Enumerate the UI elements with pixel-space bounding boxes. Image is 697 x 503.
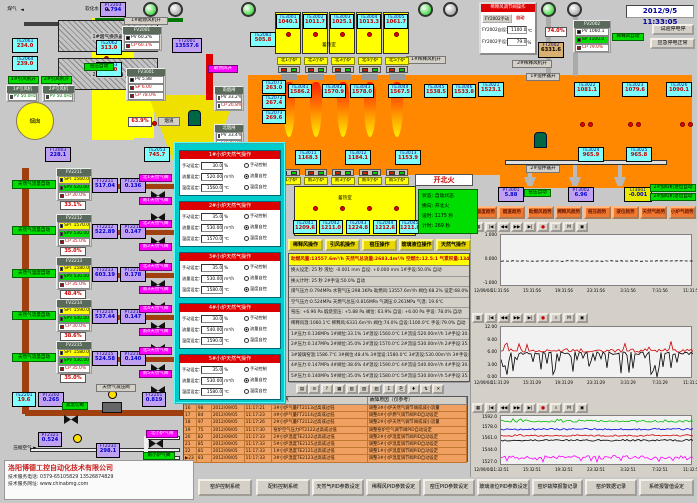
y-tick-label: 1578.0 xyxy=(470,425,497,430)
x-tick-label: 19:31:29 xyxy=(550,380,578,385)
tag-te3025: TE3025965.8 xyxy=(626,147,652,162)
tag-pt3002: PT30026.96 xyxy=(568,187,594,202)
regen-label-south: 蓄热室 xyxy=(332,195,358,203)
trend-button-5[interactable]: 窑压趋势 xyxy=(584,206,611,219)
trend-button-7[interactable]: 天然气趋势 xyxy=(640,206,667,219)
status-line: 换向: 开北火 xyxy=(422,202,474,212)
gas-panel-field: 手动设定:35.0% xyxy=(182,212,228,221)
tag-te3042: TE30421570.9 xyxy=(322,84,346,98)
bottom-button-3[interactable]: 天然气PID参数设定 xyxy=(312,479,364,496)
gas-setpoint-input[interactable]: 1580.0 xyxy=(201,388,223,396)
fan-7 xyxy=(567,2,582,17)
bottom-button-8[interactable]: 窑炉数据记录 xyxy=(585,479,637,496)
valve-icon[interactable] xyxy=(151,185,165,194)
process-data-row: 5#压力:0.140MPa 5#阀位:35.0% 5#温设:1580.0℃ 5#… xyxy=(289,372,469,383)
scada-main-screen: 1#烟气换热器2#烟气换热器烟囱TE2061234.0TE2064239.0TE… xyxy=(0,0,697,503)
valve-icon[interactable] xyxy=(151,207,165,216)
chart1-toolbar-6[interactable]: ● xyxy=(537,222,549,232)
valve-pos-2: 35.0% xyxy=(60,247,86,256)
alarm-row[interactable]: 20822012/09/0511:17:332#小炉温度TE2122过高或过低调… xyxy=(184,434,467,441)
bottom-button-2[interactable]: 配料控制系统 xyxy=(256,479,310,496)
tag-te3044: TE30441567.5 xyxy=(388,84,412,98)
tag-ft2201: FT22010.819 xyxy=(142,392,166,407)
stirrer-status-2: 2#搅拌器开 xyxy=(526,165,560,173)
kiln-pressure-auto-1: 窑压自动 xyxy=(84,63,114,71)
tag-ft2231: FT2231298.1 xyxy=(96,443,120,458)
pressure-reducer-label: 天然气减压阀 xyxy=(96,384,136,392)
fan-2 xyxy=(168,2,183,17)
controller-fv2002[interactable]: FV2002PV 1060.1SP 1100.0CP 79.0% xyxy=(573,20,611,53)
tag-ft2003: FT2003228.1 xyxy=(45,147,71,162)
tag-te3023: TE30231079.6 xyxy=(622,82,648,97)
valve-icon[interactable] xyxy=(151,380,165,389)
port-n5 xyxy=(389,74,405,80)
fan1-run: 1#引风机开 xyxy=(8,76,39,84)
vendor-name: 洛阳博德工控自动化技术有限公司 xyxy=(8,463,190,473)
popup-title: 稀释风调节阀操作 xyxy=(481,4,535,12)
port-gas-control-popup: 1#小炉天然气操作手动设定:30.0%流量设定:520.00m³/h温度设定:1… xyxy=(174,142,286,404)
trend-button-4[interactable]: 稀释风趋势 xyxy=(555,206,582,219)
gas-setpoint-input[interactable]: 530.00 xyxy=(201,224,223,232)
gas-mode-radio-2[interactable]: 温度自控 xyxy=(244,388,267,394)
fy2002-manual-set-label: FY2002手设: xyxy=(482,39,507,45)
alarm-toolbar-icon-5[interactable]: ▥ xyxy=(346,384,358,394)
emergency-power-normal-button[interactable]: 应急停电正常 xyxy=(650,38,695,49)
x-tick-label: 11:31:29 xyxy=(486,380,514,385)
flue-label: 烟道 xyxy=(158,117,180,126)
gas-mode-radio-2[interactable]: 温度自控 xyxy=(244,286,267,292)
gas-mode-radio-2[interactable]: 温度自控 xyxy=(244,184,267,190)
flue-damper-pos: 63.9% xyxy=(128,117,152,127)
valve-pos-1: 33.1% xyxy=(60,201,86,210)
fan-status-combustion: 1#助燃风机开 xyxy=(124,17,168,25)
alarm-row[interactable]: 19752012/09/0511:17:30窑炉空气压力PT2122过高或过低调… xyxy=(184,427,467,434)
fy2002-manual-set-input[interactable]: 79.0 xyxy=(507,38,527,46)
gas-setpoint-input[interactable]: 30.0 xyxy=(201,162,223,170)
gas-valve-s5: 南5天然气阀 xyxy=(139,370,172,378)
y-tick-label: 12.00 xyxy=(470,325,497,330)
chart3-toolbar-1[interactable]: ▦ xyxy=(472,403,484,413)
tag-ft2214: FT2214537.44 xyxy=(92,309,118,324)
alarm-dot xyxy=(394,32,399,37)
burner-indicator xyxy=(305,169,327,176)
bottom-button-4[interactable]: 稀释风PID参数设定 xyxy=(366,479,421,496)
x-tick-label: 11:31:56 xyxy=(678,288,697,293)
alarm-toolbar-icon-3[interactable]: ? xyxy=(321,384,333,394)
alarm-toolbar-icon-12[interactable]: ✕ xyxy=(432,384,444,394)
gas-panel-1: 1#小炉天然气操作手动设定:30.0%流量设定:520.00m³/h温度设定:1… xyxy=(179,150,281,196)
alarm-dot xyxy=(580,122,585,127)
chart1-toolbar-7[interactable]: ⌕ xyxy=(550,222,562,232)
damper-bar xyxy=(206,54,213,100)
tag-ft2213: FT2213603.19 xyxy=(92,267,118,282)
status-line: 计时: 269 秒 xyxy=(422,222,474,232)
tag-te2064: TE2064239.0 xyxy=(12,56,38,71)
burner-indicator xyxy=(278,66,300,73)
fan-5 xyxy=(443,2,458,17)
fan-status-dilution2: 2#稀释风机开 xyxy=(512,60,552,68)
x-tick-label: 23:32:51 xyxy=(582,467,610,472)
tag-te3045: TE30451538.5 xyxy=(424,84,448,98)
air-valve-actuator[interactable] xyxy=(73,434,82,443)
controller-fv2211[interactable]: FV2211SPT 1560.0SPV 520.00CP 30.0% xyxy=(56,168,92,201)
tag-te2053: TE2053745.7 xyxy=(144,147,170,162)
gas-auto-2: 天然气流量自动 xyxy=(12,226,56,235)
gas-mode-radio-1[interactable]: 流量自控 xyxy=(244,326,267,332)
controller-south-damper[interactable]: 南烟闸PV 33.2%CP 20.8% xyxy=(214,86,244,111)
x-tick-label: 19:31:56 xyxy=(550,288,578,293)
alarm-toolbar-icon-1[interactable]: ▤ xyxy=(296,384,308,394)
chart1-toolbar-4[interactable]: ▶▶ xyxy=(511,222,523,232)
controller-fv2215[interactable]: FV2215SPT 1580.0SPV 530.00CP 35.0% xyxy=(56,341,92,374)
alarm-row[interactable]: 21852012/09/0511:17:335#小炉温度TE2125过高或过低调… xyxy=(184,441,467,448)
valve-pos-4: 38.6% xyxy=(60,332,86,341)
alarm-toolbar-icon-10[interactable]: ♦ xyxy=(408,384,420,394)
y-tick-label: 1544.0 xyxy=(470,448,497,453)
tag-te3001: TE30011040.1 xyxy=(276,14,300,29)
dilution-auto: 稀释风自动 xyxy=(612,33,644,41)
gas-panel-field: 温度设定:1560.0℃ xyxy=(182,183,229,192)
gas-panel-3: 3#小炉天然气操作手动设定:35.0%流量设定:530.00m³/h温度设定:1… xyxy=(179,252,281,298)
trend-button-6[interactable]: 液位趋势 xyxy=(612,206,639,219)
gas-setpoint-input[interactable]: 520.00 xyxy=(201,173,223,181)
bottom-button-1[interactable]: 窑炉控制系统 xyxy=(198,479,252,496)
tag-te3003: TE30031025.1 xyxy=(330,14,354,29)
alarm-toolbar-icon-11[interactable]: ⇅ xyxy=(420,384,432,394)
process-data-row: 1#压力:0.136MPa 1#阀位:33.1% 1#温设:1560.0℃ 1#… xyxy=(289,330,469,341)
motor-1 xyxy=(188,110,201,126)
glass-level-trend xyxy=(500,234,692,286)
fan-vfd-1[interactable]: 1#引风机PV 50.0Hz xyxy=(6,85,39,102)
fan-4 xyxy=(418,2,433,17)
x-tick-label: 23:31:29 xyxy=(582,380,610,385)
controller-fv2212[interactable]: FV2212SPT 1570.0SPV 530.00CP 35.0% xyxy=(56,214,92,247)
x-tick-label: 11:32:51 xyxy=(678,467,697,472)
alarm-toolbar-icon-8[interactable]: Σ xyxy=(383,384,395,394)
north-port-4: 北4小炉 xyxy=(358,57,382,65)
valve-icon[interactable] xyxy=(151,358,165,367)
x-tick-label: 15:31:56 xyxy=(518,288,546,293)
alarm-dot xyxy=(688,122,693,127)
gas-setpoint-input[interactable]: 1560.0 xyxy=(201,184,223,192)
chart2-toolbar-2[interactable]: |◀ xyxy=(485,313,497,323)
fan-vfd-2[interactable]: 2#引风机PV 50.0Hz xyxy=(42,85,75,102)
gas-setpoint-input[interactable]: 530.00 xyxy=(201,275,223,283)
chart1-toolbar-2[interactable]: |◀ xyxy=(485,222,497,232)
fy2002-auto-set-input[interactable]: 1100.0 xyxy=(507,26,527,34)
furnace-temperature-trend xyxy=(500,415,692,465)
x-tick-label: 15:31:29 xyxy=(518,380,546,385)
gas-panel-field: 温度设定:1570.0℃ xyxy=(182,234,229,243)
hanger-3 xyxy=(618,165,622,177)
status-line: 状态: 自动状态 xyxy=(422,192,474,202)
fy2002-auto-set-label: FY2002自设: xyxy=(482,27,507,33)
gas-auto-5: 天然气流量自动 xyxy=(12,353,56,362)
alarm-row[interactable]: 22812012/09/0511:17:331#小炉温度TE2121过高或过低调… xyxy=(184,448,467,455)
alarm-dot xyxy=(367,206,372,211)
alarm-dot xyxy=(367,32,372,37)
bottom-button-6[interactable]: 玻璃液位PID参数设定 xyxy=(477,479,530,496)
tag-te2201: TE220119.6 xyxy=(12,392,36,407)
valve-pos-3: 48.4% xyxy=(60,290,86,299)
gas-panel-2: 2#小炉天然气操作手动设定:35.0%流量设定:530.00m³/h温度设定:1… xyxy=(179,201,281,247)
gas-panel-field: 手动设定:30.0% xyxy=(182,314,228,323)
chart2-toolbar-9[interactable]: ▣ xyxy=(576,313,588,323)
alarm-dot xyxy=(628,122,633,127)
gas-setpoint-input[interactable]: 530.00 xyxy=(201,377,223,385)
hanger-2 xyxy=(573,165,577,177)
process-data-row: 4#压力:0.147MPa 4#阀位:38.6% 4#温设:1590.0℃ 4#… xyxy=(289,361,469,372)
op-button-3[interactable]: 窑压操作 xyxy=(362,239,397,251)
emergency-cutoff: 紧急切断 xyxy=(62,402,88,410)
fy2002-manual-button[interactable]: FY2002手动 xyxy=(482,14,512,23)
valve-icon[interactable] xyxy=(151,253,165,262)
x-tick-label: 19:32:51 xyxy=(550,467,578,472)
tag-te3013: TE30131153.9 xyxy=(395,150,421,165)
y-tick-label: 9.00 xyxy=(470,338,497,343)
alarm-table[interactable]: 故障点故障原因（仅参考）16982012/09/0511:17:213#小炉气量… xyxy=(183,396,468,462)
tag-te2041: TE20411209.6 xyxy=(293,220,317,234)
gas-setpoint-input[interactable]: 540.00 xyxy=(201,326,223,334)
process-data-panel: 助燃风量:13557.6m³/h 天然气总流量:2683.4m³/h 空燃比:1… xyxy=(288,253,470,382)
south-port-gas-valve: 南小炉气阀 xyxy=(143,452,175,460)
unit-label: ℃ xyxy=(527,28,532,33)
north-port-1: 北1小炉 xyxy=(277,57,301,65)
alarm-toolbar-icon-7[interactable]: ▨ xyxy=(370,384,382,394)
port-n4 xyxy=(362,74,378,80)
alarm-row[interactable]: ▶23832012/09/0511:17:333#小炉温度TE2123过高或过低… xyxy=(184,455,467,462)
x-tick-label: 11:31:56 xyxy=(486,288,514,293)
tag-ft2002: FT20026331.6 xyxy=(538,42,564,58)
gas-panel-4: 4#小炉天然气操作手动设定:30.0%流量设定:540.00m³/h温度设定:1… xyxy=(179,303,281,349)
tag-pt2202: PT22020.265 xyxy=(38,392,64,407)
tag-te2062: TE2062313.0 xyxy=(96,40,122,55)
alarm-row[interactable]: 16982012/09/0511:17:213#小炉气量FT2113过高或过低调… xyxy=(184,405,467,412)
process-data-row: 3#玻璃窑温:1586.7℃ 3#阀位:48.4% 3#温设:1580.0℃ 3… xyxy=(289,351,469,362)
tag-te3024: TE3024965.9 xyxy=(578,147,604,162)
valve-icon[interactable] xyxy=(64,409,78,418)
chart1-toolbar-9[interactable]: ▣ xyxy=(576,222,588,232)
tag-te3041: TE30411586.2 xyxy=(288,84,312,98)
op-button-2[interactable]: 引风机操作 xyxy=(325,239,360,251)
chart3-toolbar-6[interactable]: ● xyxy=(537,403,549,413)
burner-indicator xyxy=(305,66,327,73)
north-port-2: 北2小炉 xyxy=(304,57,328,65)
tag-te2043: TE20431224.8 xyxy=(346,220,370,234)
tag-te3021: TE30211523.1 xyxy=(478,82,504,97)
stirrer-motor xyxy=(534,132,547,148)
alarm-dot xyxy=(286,32,291,37)
chart3-toolbar-9[interactable]: ▣ xyxy=(576,403,588,413)
valve-icon[interactable] xyxy=(151,296,165,305)
gas-panel-field: 流量设定:530.00m³/h xyxy=(182,274,234,283)
chart1-toolbar-5[interactable]: ▶| xyxy=(524,222,536,232)
gas-mode-radio-2[interactable]: 温度自控 xyxy=(244,235,267,241)
valve-icon[interactable] xyxy=(151,231,165,240)
port-n2 xyxy=(308,74,324,80)
y-tick-label: 3.00 xyxy=(470,363,497,368)
alarm-toolbar-icon-2[interactable]: ≡ xyxy=(308,384,320,394)
chart3-toolbar-7[interactable]: ⌕ xyxy=(550,403,562,413)
gas-panel-title: 5#小炉天然气操作 xyxy=(180,355,280,363)
gas-valve-s3: 南3天然气阀 xyxy=(139,286,172,294)
chart3-toolbar-5[interactable]: ▶| xyxy=(524,403,536,413)
north-port-5: 北5小炉 xyxy=(385,57,409,65)
chimney: 烟囱 xyxy=(16,102,54,140)
gas-mode-radio-0[interactable]: 手动控制 xyxy=(244,213,267,219)
process-data-row: 换火设定: 25 秒 液位: -0.001 mm 自设: +0.000 mm 1… xyxy=(289,266,469,277)
controller-fv2214[interactable]: FV2214SPT 1590.0SPV 540.00CP 30.0% xyxy=(56,299,92,332)
chart2-toolbar-1[interactable]: ▦ xyxy=(472,313,484,323)
tag-te3012: TE30121184.1 xyxy=(345,150,371,165)
alarm-dot xyxy=(313,32,318,37)
y-tick-label: 1527.0 xyxy=(470,460,497,465)
chart3-toolbar-2[interactable]: |◀ xyxy=(485,403,497,413)
gas-panel-title: 2#小炉天然气操作 xyxy=(180,202,280,210)
north-port-gas-valve: 北小炉气阀 xyxy=(146,430,178,438)
dilution-valve-pos: 74.0% xyxy=(545,27,567,37)
alarm-toolbar-icon-9[interactable]: ⎘ xyxy=(395,384,407,394)
tag-te2073: TE2073269.6 xyxy=(262,110,286,124)
chart3-toolbar-4[interactable]: ▶▶ xyxy=(511,403,523,413)
bottom-button-7[interactable]: 窑炉故障报警记录 xyxy=(532,479,583,496)
gas-mode-radio-0[interactable]: 手动控制 xyxy=(244,315,267,321)
alarm-dot xyxy=(152,121,157,126)
x-tick-label: 15:32:51 xyxy=(518,467,546,472)
trend-button-2[interactable]: 烟道趋势 xyxy=(498,206,525,219)
south-port-2: 南2小炉 xyxy=(304,177,328,185)
tag-te3043: TE30431578.0 xyxy=(350,84,374,98)
vendor-info-box: 洛阳博德工控自动化技术有限公司 技术服务电话: 0379-65105829 13… xyxy=(4,460,194,500)
gas-valve-n4: 北4天然气阀 xyxy=(139,305,172,313)
process-data-row: 换火计时: 25 秒 2#手设:50.0% 自动 xyxy=(289,277,469,288)
tag-te3005: TE30051061.7 xyxy=(384,14,408,29)
chart1-toolbar-8[interactable]: M xyxy=(563,222,575,232)
fan-status-dilution1: 1#稀释风机开 xyxy=(406,56,446,64)
bottom-button-5[interactable]: 窑压PID参数设定 xyxy=(423,479,475,496)
pressure-reducer-body xyxy=(102,402,122,413)
gas-mode-radio-1[interactable]: 流量自控 xyxy=(244,173,267,179)
alarm-dot xyxy=(680,122,685,127)
x-tick-label: 7:32:51 xyxy=(646,467,674,472)
gas-panel-field: 手动设定:35.0% xyxy=(182,365,228,374)
op-button-5[interactable]: 天然气操作 xyxy=(436,239,471,251)
unit-label: % xyxy=(527,40,531,45)
label: ◄ xyxy=(18,7,26,15)
gas-setpoint-input[interactable]: 1570.0 xyxy=(201,235,223,243)
gas-mode-radio-0[interactable]: 手动控制 xyxy=(244,162,267,168)
regen-label-top: 蓄热室 xyxy=(316,42,342,50)
controller-fv3001[interactable]: FV3001PV 5.88SP 6.00CP 78.0% xyxy=(126,68,166,101)
gas-mode-radio-0[interactable]: 手动控制 xyxy=(244,264,267,270)
gas-setpoint-input[interactable]: 35.0 xyxy=(201,366,223,374)
dilution-fan-valve-popup: 稀释风调节阀操作 FY2002手动 自动 FY2002自设: 1100.0 ℃ … xyxy=(479,2,537,55)
feeder-reverse-auto: 2#加料机退位自动 xyxy=(650,193,696,201)
gas-panel-field: 流量设定:520.00m³/h xyxy=(182,172,234,181)
trend-button-3[interactable]: 助燃风趋势 xyxy=(527,206,554,219)
alarm-row[interactable]: 17842012/09/0511:17:234#小炉气量FT2114过高或过低调… xyxy=(184,412,467,419)
tag-te2081: TE2081505.8 xyxy=(250,32,276,47)
gas-mode-radio-1[interactable]: 流量自控 xyxy=(244,377,267,383)
fire-direction-box: 开北火 xyxy=(415,174,473,186)
gas-setpoint-input[interactable]: 1590.0 xyxy=(201,337,223,345)
valve-icon[interactable] xyxy=(151,338,165,347)
op-button-1[interactable]: 稀释风操作 xyxy=(288,239,323,251)
kiln-pressure-trend xyxy=(500,326,692,378)
burner-indicator xyxy=(359,66,381,73)
process-data-row: 稀释风温:1060.1℃ 稀释风:6331.6m³/h 阀位:74.0% 自设:… xyxy=(289,319,469,330)
chart2-toolbar-6[interactable]: ● xyxy=(537,313,549,323)
x-tick-label: 7:31:56 xyxy=(646,288,674,293)
chart2-toolbar-8[interactable]: M xyxy=(563,313,575,323)
chart3-toolbar-8[interactable]: M xyxy=(563,403,575,413)
gas-mode-radio-1[interactable]: 流量自控 xyxy=(244,275,267,281)
x-tick-label: 3:31:56 xyxy=(614,288,642,293)
gas-mode-radio-2[interactable]: 温度自控 xyxy=(244,337,267,343)
process-data-row: 煤气压力:0.794MPa 水管气压:298.1KPa 助燃风:13557.6m… xyxy=(289,287,469,298)
x-tick-label: 11:32:51 xyxy=(486,467,514,472)
port-n3 xyxy=(335,74,351,80)
alarm-toolbar-icon-6[interactable]: ▧ xyxy=(358,384,370,394)
bottom-button-9[interactable]: 系统报警值设定 xyxy=(639,479,694,496)
chart2-toolbar-7[interactable]: ⌕ xyxy=(550,313,562,323)
alarm-toolbar-icon-4[interactable]: ▦ xyxy=(333,384,345,394)
gas-setpoint-input[interactable]: 30.0 xyxy=(201,315,223,323)
process-data-row: 空气压力:0.524MPa 天燃气总压:0.816MPa 气调压:0.261MP… xyxy=(289,298,469,309)
gas-auto-1: 天然气流量自动 xyxy=(12,180,56,189)
fy2002-mode-label: 自动 xyxy=(516,15,524,21)
gas-setpoint-input[interactable]: 35.0 xyxy=(201,213,223,221)
burner-indicator xyxy=(359,169,381,176)
gas-mode-radio-0[interactable]: 手动控制 xyxy=(244,366,267,372)
flow-summary-header: 助燃风量:13557.6m³/h 天然气总流量:2683.4m³/h 空燃比:1… xyxy=(289,254,469,266)
chart2-toolbar-3[interactable]: ◀◀ xyxy=(498,313,510,323)
gas-setpoint-input[interactable]: 35.0 xyxy=(201,264,223,272)
gas-panel-5: 5#小炉天然气操作手动设定:35.0%流量设定:530.00m³/h温度设定:1… xyxy=(179,354,281,400)
chart1-toolbar-3[interactable]: ◀◀ xyxy=(498,222,510,232)
y-tick-label: 1592.0 xyxy=(470,415,497,420)
valve-icon[interactable] xyxy=(151,316,165,325)
x-tick-label: 23:31:56 xyxy=(582,288,610,293)
gas-mode-radio-1[interactable]: 流量自控 xyxy=(244,224,267,230)
gas-valve-n1: 北1天然气阀 xyxy=(139,174,172,182)
chart2-toolbar-5[interactable]: ▶| xyxy=(524,313,536,323)
alarm-row[interactable]: 18972012/09/0511:17:262#小炉气量FT2112过高或过低调… xyxy=(184,419,467,426)
fan2-run: 2#引风机开 xyxy=(41,76,72,84)
burner-indicator xyxy=(386,66,408,73)
fan-6 xyxy=(541,2,556,17)
vendor-website: 技术服务网址: www.chinabmg.com xyxy=(8,480,190,487)
chart2-toolbar-4[interactable]: ▶▶ xyxy=(511,313,523,323)
label: ◄ xyxy=(103,7,111,15)
tag-te2042: TE20421211.0 xyxy=(319,220,343,234)
alarm-dot xyxy=(340,32,345,37)
tag-te3022: TE30221081.1 xyxy=(574,82,600,97)
gas-setpoint-input[interactable]: 1580.0 xyxy=(201,286,223,294)
status-line: 设时: 1175 秒 xyxy=(422,212,474,222)
tag-ft2211: FT2211517.04 xyxy=(92,178,118,193)
gas-panel-field: 温度设定:1580.0℃ xyxy=(182,387,229,396)
controller-fv2001[interactable]: FV2001PV 60.2%CP 60.1% xyxy=(122,26,162,51)
valve-icon[interactable] xyxy=(151,274,165,283)
chart3-toolbar-3[interactable]: ◀◀ xyxy=(498,403,510,413)
controller-fv2213[interactable]: FV2213SPT 1580.0SPV 530.00CP 35.0% xyxy=(56,257,92,290)
op-button-4[interactable]: 玻璃液位操作 xyxy=(399,239,434,251)
trend-button-8[interactable]: 小炉气趋势 xyxy=(669,206,696,219)
tag-te3004: TE30041013.3 xyxy=(357,14,381,29)
fan-1 xyxy=(143,2,158,17)
y-tick-label: 0.000 xyxy=(470,257,497,262)
